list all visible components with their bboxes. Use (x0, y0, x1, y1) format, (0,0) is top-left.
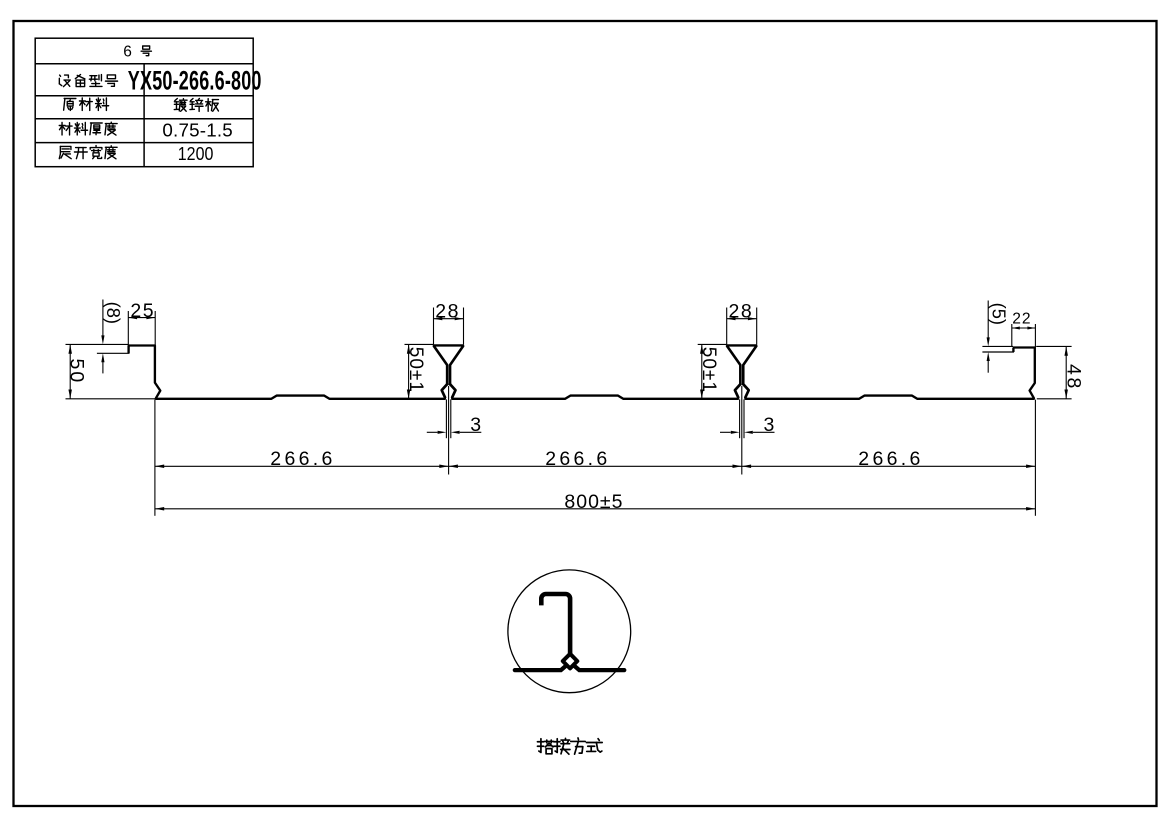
svg-text:25: 25 (130, 300, 155, 322)
svg-text:28: 28 (435, 301, 460, 323)
svg-text:266.6: 266.6 (545, 448, 610, 470)
svg-text:50±1: 50±1 (405, 347, 426, 393)
svg-text:YX50-266.6-800: YX50-266.6-800 (128, 65, 262, 96)
svg-text:50: 50 (65, 359, 87, 385)
svg-text:1200: 1200 (178, 143, 214, 165)
svg-text:266.6: 266.6 (270, 448, 335, 470)
svg-text:22: 22 (1012, 310, 1031, 327)
svg-text:28: 28 (729, 301, 754, 323)
svg-text:48: 48 (1063, 364, 1085, 391)
svg-text:800±5: 800±5 (564, 491, 623, 513)
svg-text:(5): (5) (989, 303, 1010, 325)
svg-text:6: 6 (123, 44, 132, 61)
svg-text:(8): (8) (103, 302, 124, 324)
svg-text:0.75-1.5: 0.75-1.5 (162, 119, 233, 140)
svg-text:50±1: 50±1 (698, 347, 719, 393)
svg-text:266.6: 266.6 (858, 448, 923, 470)
svg-text:3: 3 (764, 414, 775, 436)
svg-text:3: 3 (470, 414, 481, 436)
